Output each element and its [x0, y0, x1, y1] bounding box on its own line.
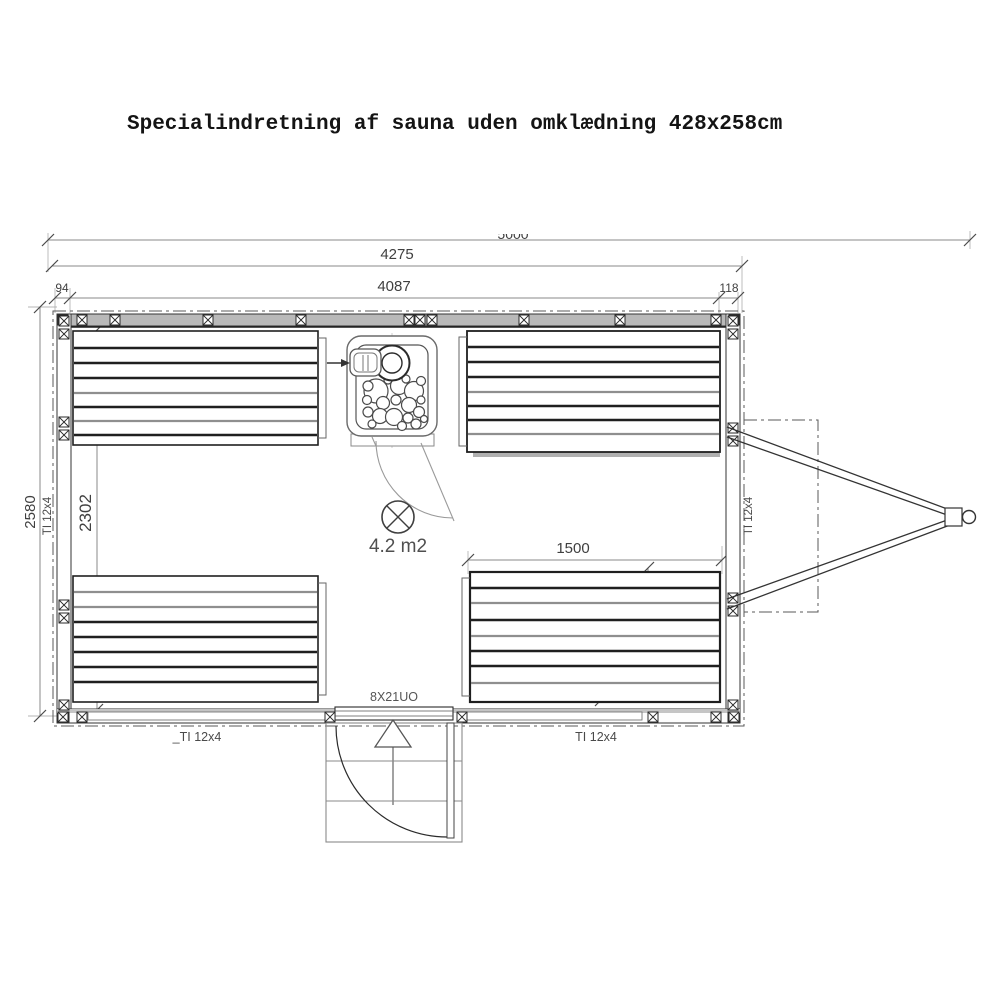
dim-inner-width-value: 2302 [76, 494, 95, 532]
floor-area-label: 4.2 m2 [369, 536, 427, 557]
dim-bench-length: 1500 [462, 540, 728, 566]
bottom-wall-timber-label-right: TI 12x4 [575, 730, 617, 744]
dim-frame-length-value: 4275 [380, 246, 413, 263]
entrance-door [326, 720, 462, 842]
dim-inner-length-value: 4087 [377, 278, 410, 295]
trailer-hitch [727, 427, 976, 609]
lamp-symbol [382, 501, 414, 533]
entrance-arrow-icon [375, 720, 411, 747]
door-sill [335, 707, 453, 720]
stove-symbol [327, 336, 454, 521]
dim-inner-length: 94 4087 118 [49, 278, 744, 304]
dim-frame-length: 4275 [46, 246, 748, 272]
stove-stones [363, 375, 428, 431]
bottom-wall-timber-label-left: _TI 12x4 [172, 730, 222, 744]
dim-overall-length: 5000 [42, 224, 976, 246]
floor-plan-drawing: 5000 4275 94 4087 118 2580 [0, 0, 1000, 1000]
hitch-ball-icon [963, 511, 976, 524]
door-leaf [447, 723, 454, 838]
clipped-text-mask [486, 224, 540, 234]
dim-right-offset-value: 118 [719, 281, 738, 295]
dim-left-offset-value: 94 [55, 281, 69, 295]
blueprint-page: Specialindretning af sauna uden omklædni… [0, 0, 1000, 1000]
right-wall-timber-label: TI 12x4 [743, 496, 755, 535]
hitch-plate [945, 508, 962, 526]
hitch-zone-outline [744, 420, 818, 612]
dim-overall-width-value: 2580 [22, 495, 39, 528]
door-spec-label: 8X21UO [370, 690, 418, 704]
dim-bench-length-value: 1500 [556, 540, 589, 557]
left-wall-timber-label: TI 12x4 [42, 496, 54, 535]
